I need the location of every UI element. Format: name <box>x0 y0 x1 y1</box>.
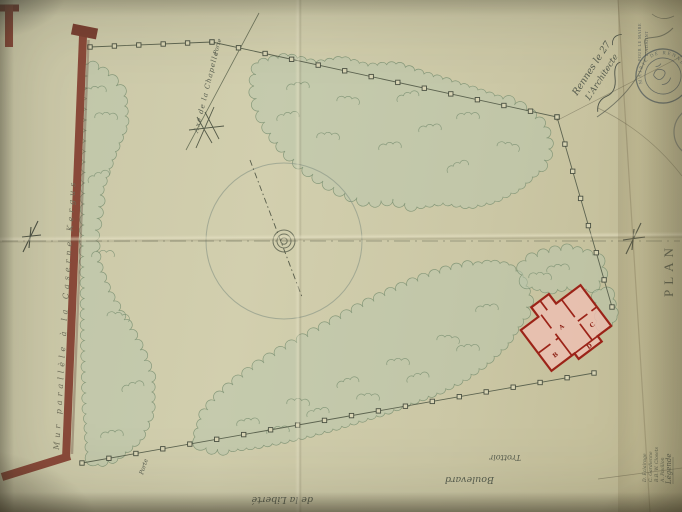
fence-post <box>430 399 434 403</box>
fence-post <box>188 442 192 446</box>
fence-post <box>457 395 461 399</box>
tree-mass <box>79 61 155 466</box>
legend-item: D. Éclairage <box>640 453 648 483</box>
fence-post <box>422 86 426 90</box>
scanned-plan: A B C D Axe de la Chapelle Porte Porte M… <box>0 0 682 512</box>
fence-post <box>511 385 515 389</box>
fence-post <box>592 371 596 375</box>
fence-post <box>555 115 559 119</box>
axis-diagonal <box>250 160 302 297</box>
fence-post <box>322 418 326 422</box>
label-de-la-liberte: de la Liberté <box>251 494 313 505</box>
fence-post <box>343 69 347 73</box>
fence-post <box>161 447 165 451</box>
legend-item: A. Pavillon <box>660 457 666 483</box>
signature-flourish <box>652 14 674 19</box>
fence-post <box>215 437 219 441</box>
fence-post <box>161 42 165 46</box>
stamp-pour-le-maire: POUR LE MAIRE <box>637 23 642 61</box>
tree-mass <box>249 54 554 212</box>
fence-post <box>528 109 532 113</box>
party-wall-return <box>2 456 70 477</box>
legend-heading: Légende <box>665 453 673 485</box>
fence-post <box>571 169 575 173</box>
fence-post <box>586 223 590 227</box>
fence-post <box>137 43 141 47</box>
pencil-line <box>598 108 682 176</box>
fence-post <box>210 40 214 44</box>
legend-item: C. Gardienne <box>648 451 654 482</box>
fence-post <box>396 80 400 84</box>
label-porte-gate: Porte <box>138 458 150 477</box>
tree-mass <box>193 260 534 455</box>
label-axe-chapelle: Axe de la Chapelle <box>192 50 220 135</box>
fence-post <box>475 98 479 102</box>
plan-drawing: A B C D Axe de la Chapelle Porte Porte M… <box>0 0 682 512</box>
fence-post <box>565 376 569 380</box>
fence-post <box>403 404 407 408</box>
fence-post <box>449 92 453 96</box>
axis-mark-left <box>22 221 41 252</box>
fence-post <box>349 413 353 417</box>
legend: Légende A. Pavillon B.B. W. Closets C. G… <box>640 446 673 485</box>
fence-post <box>289 57 293 61</box>
stamp-outer-ring <box>674 106 682 158</box>
legend-item: B.B. W. Closets <box>654 446 660 483</box>
wall-cap <box>72 29 97 34</box>
fence-post <box>268 428 272 432</box>
fence-post <box>242 432 246 436</box>
fence-post <box>376 409 380 413</box>
adjoint-stamp: POUR LE MAIRE L'ADJOINT <box>637 23 649 61</box>
partial-round-stamp <box>674 106 682 158</box>
fence-post <box>563 142 567 146</box>
label-trottoir: Trottoir <box>488 453 521 462</box>
fence-post <box>602 278 606 282</box>
fence-post <box>369 74 373 78</box>
handwritten-note: Rennes le 27 L'Architecte <box>569 28 641 113</box>
fence-post <box>594 251 598 255</box>
fence-post <box>484 390 488 394</box>
fence-post <box>134 451 138 455</box>
fence-post <box>263 51 267 55</box>
fence-post <box>295 423 299 427</box>
fence-post <box>502 103 506 107</box>
mairie-round-stamp: MAIRIE DE RENNES <box>626 39 682 112</box>
stamp-emblem <box>650 63 672 87</box>
label-boulevard: Boulevard <box>445 474 495 485</box>
fence-post <box>316 63 320 67</box>
label-plan-title: PLAN <box>661 243 676 297</box>
fence-post <box>112 44 116 48</box>
fence-post <box>538 380 542 384</box>
fence-post <box>610 305 614 309</box>
fence-post <box>185 41 189 45</box>
fence-post <box>107 456 111 460</box>
fence-post <box>236 46 240 50</box>
fence-post <box>80 461 84 465</box>
fence-post <box>578 196 582 200</box>
